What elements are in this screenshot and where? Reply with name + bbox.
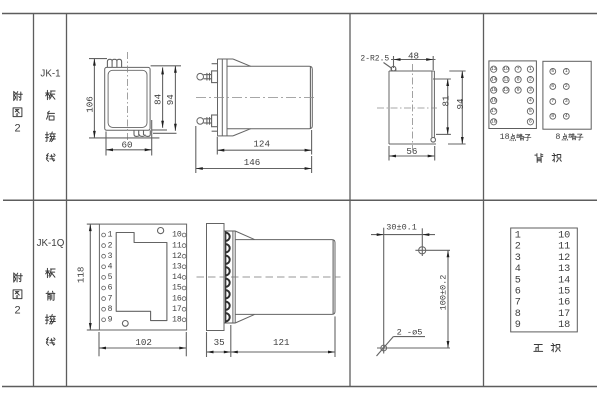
svg-text:5: 5 bbox=[529, 108, 532, 114]
svg-text:1: 1 bbox=[565, 68, 568, 74]
svg-text:18: 18 bbox=[500, 132, 510, 142]
svg-text:12: 12 bbox=[503, 87, 509, 93]
svg-text:7: 7 bbox=[551, 98, 554, 104]
svg-text:14: 14 bbox=[558, 275, 570, 286]
svg-text:10: 10 bbox=[558, 231, 570, 242]
svg-text:14: 14 bbox=[491, 76, 497, 82]
svg-text:15: 15 bbox=[558, 287, 570, 298]
svg-text:15: 15 bbox=[172, 284, 182, 293]
svg-text:4: 4 bbox=[108, 263, 113, 272]
svg-text:12: 12 bbox=[172, 252, 182, 261]
svg-text:121: 121 bbox=[273, 337, 290, 348]
svg-text:10: 10 bbox=[503, 66, 509, 72]
svg-text:146: 146 bbox=[244, 157, 261, 168]
svg-text:JK-1Q: JK-1Q bbox=[37, 238, 65, 249]
svg-text:2: 2 bbox=[14, 123, 20, 135]
svg-text:17: 17 bbox=[558, 309, 570, 320]
svg-text:1: 1 bbox=[529, 66, 532, 72]
svg-text:8: 8 bbox=[551, 113, 554, 119]
svg-text:1: 1 bbox=[515, 231, 521, 242]
svg-text:5: 5 bbox=[108, 273, 113, 282]
svg-text:13: 13 bbox=[558, 264, 570, 275]
svg-text:14: 14 bbox=[172, 273, 182, 282]
svg-text:18: 18 bbox=[491, 119, 497, 125]
svg-text:5: 5 bbox=[551, 68, 554, 74]
svg-text:8: 8 bbox=[108, 305, 113, 314]
svg-text:118: 118 bbox=[75, 267, 86, 284]
svg-text:3: 3 bbox=[565, 98, 568, 104]
svg-text:18: 18 bbox=[558, 320, 570, 331]
svg-text:60: 60 bbox=[121, 140, 132, 151]
svg-text:7: 7 bbox=[108, 294, 113, 303]
svg-text:2: 2 bbox=[14, 305, 20, 317]
svg-text:9: 9 bbox=[108, 316, 113, 325]
svg-text:11: 11 bbox=[172, 241, 182, 250]
svg-text:6: 6 bbox=[529, 119, 532, 125]
svg-text:6: 6 bbox=[108, 284, 113, 293]
svg-text:11: 11 bbox=[503, 76, 508, 82]
svg-text:2-R2.5: 2-R2.5 bbox=[360, 55, 389, 64]
svg-text:2: 2 bbox=[529, 76, 532, 82]
svg-text:106: 106 bbox=[85, 96, 96, 113]
svg-text:4: 4 bbox=[515, 264, 521, 275]
svg-text:4: 4 bbox=[529, 97, 532, 103]
svg-text:102: 102 bbox=[135, 337, 152, 348]
svg-text:94: 94 bbox=[165, 94, 176, 106]
svg-text:9: 9 bbox=[517, 87, 520, 93]
svg-text:3: 3 bbox=[515, 253, 521, 264]
svg-text:3: 3 bbox=[108, 252, 113, 261]
svg-text:13: 13 bbox=[172, 263, 182, 272]
svg-text:100±0.2: 100±0.2 bbox=[438, 275, 448, 311]
svg-text:81: 81 bbox=[440, 95, 451, 107]
svg-text:4: 4 bbox=[565, 113, 568, 119]
svg-text:7: 7 bbox=[515, 298, 521, 309]
svg-text:16: 16 bbox=[491, 97, 497, 103]
svg-text:1: 1 bbox=[108, 231, 113, 240]
svg-text:16: 16 bbox=[558, 298, 570, 309]
svg-text:16: 16 bbox=[172, 294, 182, 303]
svg-text:30±0.1: 30±0.1 bbox=[386, 223, 417, 233]
svg-text:7: 7 bbox=[517, 66, 520, 72]
svg-text:94: 94 bbox=[455, 98, 466, 110]
svg-text:35: 35 bbox=[214, 337, 225, 348]
svg-text:10: 10 bbox=[172, 231, 182, 240]
svg-text:2: 2 bbox=[515, 242, 521, 253]
svg-text:17: 17 bbox=[172, 305, 182, 314]
svg-text:JK-1: JK-1 bbox=[40, 69, 60, 80]
svg-text:48: 48 bbox=[408, 50, 419, 61]
svg-text:18: 18 bbox=[172, 316, 182, 325]
svg-text:5: 5 bbox=[515, 275, 521, 286]
svg-text:12: 12 bbox=[558, 253, 570, 264]
svg-text:15: 15 bbox=[491, 87, 497, 93]
svg-text:6: 6 bbox=[551, 83, 554, 89]
svg-text:6: 6 bbox=[515, 287, 521, 298]
svg-text:13: 13 bbox=[491, 66, 497, 72]
svg-text:56: 56 bbox=[406, 146, 417, 157]
svg-text:8: 8 bbox=[515, 309, 521, 320]
svg-text:17: 17 bbox=[491, 108, 497, 114]
svg-text:8: 8 bbox=[517, 76, 520, 82]
svg-text:8: 8 bbox=[555, 132, 560, 142]
svg-text:11: 11 bbox=[558, 242, 570, 253]
svg-text:124: 124 bbox=[253, 139, 270, 150]
svg-text:9: 9 bbox=[515, 320, 521, 331]
svg-text:2: 2 bbox=[565, 83, 568, 89]
svg-text:2 -ø5: 2 -ø5 bbox=[397, 327, 423, 337]
svg-text:84: 84 bbox=[153, 93, 164, 105]
svg-text:3: 3 bbox=[529, 87, 532, 93]
svg-text:2: 2 bbox=[108, 241, 113, 250]
